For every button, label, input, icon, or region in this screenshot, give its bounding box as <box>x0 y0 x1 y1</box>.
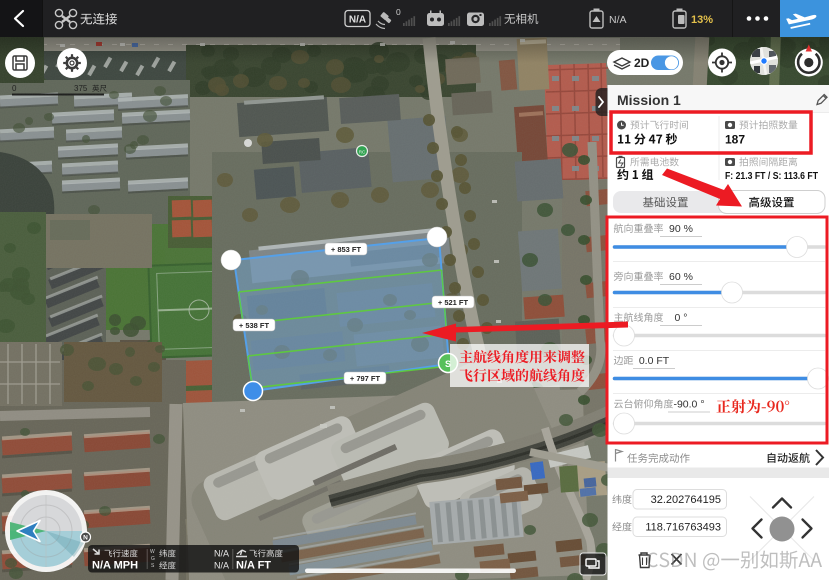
svg-text:G: G <box>151 556 155 562</box>
svg-text:F: 21.3 FT / S: 113.6 FT: F: 21.3 FT / S: 113.6 FT <box>725 171 818 182</box>
svg-text:+ 853 FT: + 853 FT <box>331 245 362 254</box>
svg-text:N/A: N/A <box>214 549 229 559</box>
svg-text:32.202764195: 32.202764195 <box>651 494 721 506</box>
svg-text:N/A FT: N/A FT <box>236 560 271 572</box>
svg-text:N/A: N/A <box>214 561 229 571</box>
svg-text:+ 538 FT: + 538 FT <box>239 321 270 330</box>
svg-text:60 %: 60 % <box>669 271 693 283</box>
svg-text:Mission 1: Mission 1 <box>617 92 681 108</box>
svg-text:N: N <box>83 535 88 542</box>
svg-text:W: W <box>150 549 155 555</box>
svg-text:+ 521 FT: + 521 FT <box>438 298 469 307</box>
svg-text:-90.0 °: -90.0 ° <box>673 399 704 411</box>
svg-text:0: 0 <box>396 7 401 17</box>
svg-text:0.0 FT: 0.0 FT <box>639 355 670 367</box>
svg-text:118.716763493: 118.716763493 <box>645 522 721 534</box>
svg-text:N/A: N/A <box>349 15 366 26</box>
svg-text:2D: 2D <box>634 56 650 70</box>
svg-text:0 °: 0 ° <box>675 312 688 324</box>
svg-text:+ 797 FT: + 797 FT <box>350 374 381 383</box>
svg-text:N/A MPH: N/A MPH <box>92 560 138 572</box>
svg-text:13%: 13% <box>691 14 713 26</box>
svg-text:N/A: N/A <box>609 14 627 26</box>
svg-text:90 %: 90 % <box>669 223 693 235</box>
svg-text:187: 187 <box>725 133 745 147</box>
